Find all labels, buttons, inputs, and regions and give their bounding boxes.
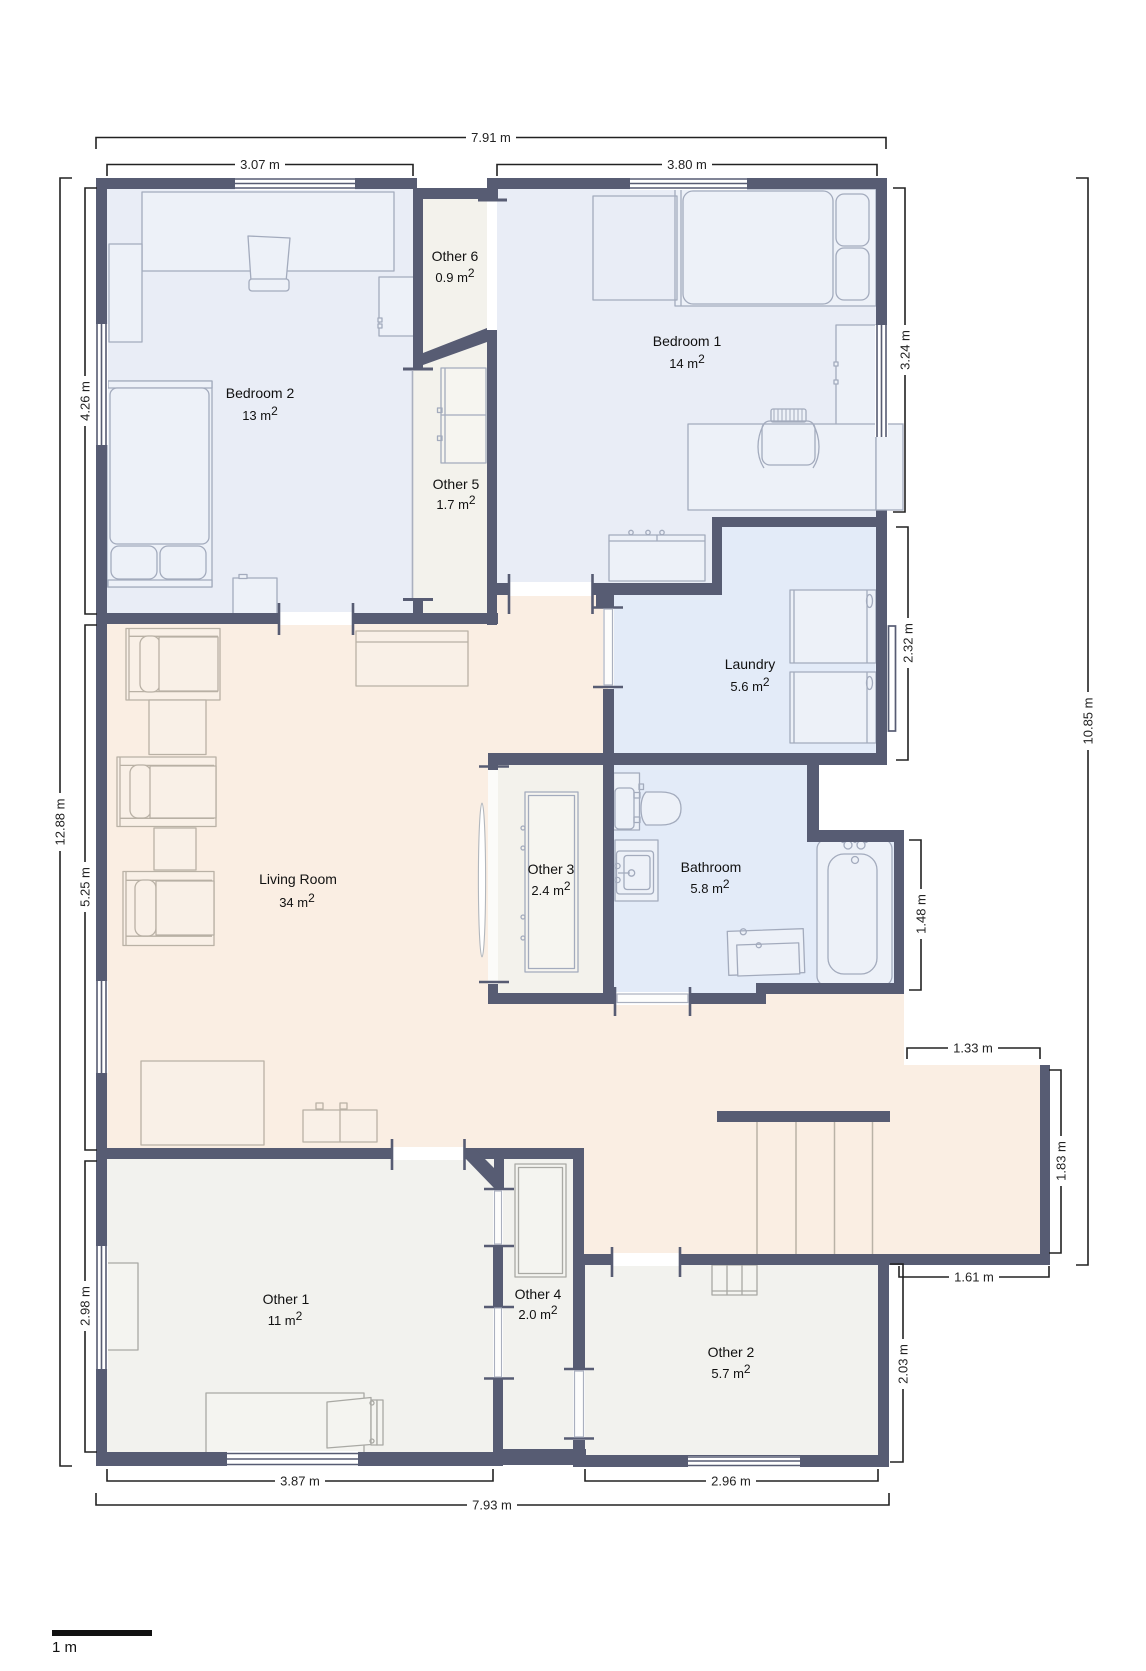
svg-text:Bedroom 1: Bedroom 1 <box>653 333 722 349</box>
svg-text:4.26 m: 4.26 m <box>78 381 93 421</box>
svg-text:Other 3: Other 3 <box>528 861 575 877</box>
svg-text:Other 6: Other 6 <box>432 248 479 264</box>
svg-text:Laundry: Laundry <box>725 656 776 672</box>
svg-text:1.33 m: 1.33 m <box>953 1041 993 1056</box>
svg-text:1.61 m: 1.61 m <box>954 1270 994 1285</box>
svg-text:1.83 m: 1.83 m <box>1054 1141 1069 1181</box>
svg-text:3.24 m: 3.24 m <box>898 330 913 370</box>
svg-text:12.88 m: 12.88 m <box>53 799 68 846</box>
svg-text:10.85 m: 10.85 m <box>1081 698 1096 745</box>
svg-text:Other 2: Other 2 <box>708 1344 755 1360</box>
svg-text:2.98 m: 2.98 m <box>78 1286 93 1326</box>
svg-text:1 m: 1 m <box>52 1639 77 1656</box>
svg-text:2.32 m: 2.32 m <box>901 623 916 663</box>
svg-text:Other 1: Other 1 <box>263 1291 310 1307</box>
svg-text:2.96 m: 2.96 m <box>711 1474 751 1489</box>
svg-text:Other 5: Other 5 <box>433 476 480 492</box>
svg-text:3.07 m: 3.07 m <box>240 157 280 172</box>
svg-text:7.93 m: 7.93 m <box>472 1498 512 1513</box>
svg-text:Living Room: Living Room <box>259 871 337 887</box>
svg-text:3.80 m: 3.80 m <box>667 157 707 172</box>
svg-text:3.87 m: 3.87 m <box>280 1474 320 1489</box>
svg-text:1.48 m: 1.48 m <box>914 894 929 934</box>
svg-text:Bathroom: Bathroom <box>681 859 742 875</box>
svg-text:Other 4: Other 4 <box>515 1286 562 1302</box>
svg-text:Bedroom 2: Bedroom 2 <box>226 385 295 401</box>
svg-text:7.91 m: 7.91 m <box>471 130 511 145</box>
svg-text:2.03 m: 2.03 m <box>896 1344 911 1384</box>
svg-text:5.25 m: 5.25 m <box>78 867 93 907</box>
